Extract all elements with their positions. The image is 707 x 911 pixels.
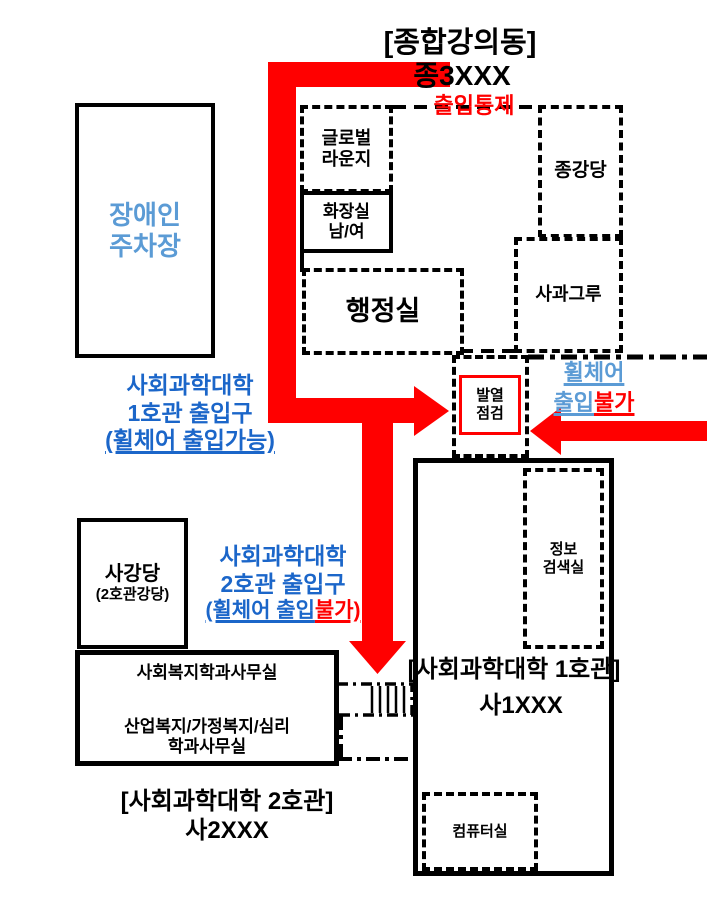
entrance1-line3: (휠체어 출입가능) (105, 427, 275, 455)
entrance2-line1: 사회과학대학 (205, 543, 360, 571)
room-sagangdang: 사강당 (2호관강당) (77, 518, 188, 649)
global-lounge-label2: 라운지 (322, 149, 372, 170)
room-auditorium: 종강당 (538, 105, 623, 238)
campus-access-map: 장애인 주차장 글로벌 라운지 화장실 남/여 종강당 사과그루 행정실 발열 … (0, 0, 707, 911)
access-control-label: 출입통제 (434, 93, 515, 119)
admin-office-label: 행정실 (346, 296, 421, 328)
arrow-to-entrance2-icon (349, 641, 406, 674)
lecture-building-title: [종합강의동] (384, 26, 537, 61)
entrance2-line3-blue: (휠체어 출입 (205, 599, 314, 622)
route-right-bar (561, 421, 707, 441)
sagangdang-label: 사강당 (105, 563, 160, 587)
fever-check-label: 발열 (476, 387, 504, 405)
room-sagwageuru: 사과그루 (514, 237, 623, 353)
room-info-search: 정보 검색실 (523, 468, 604, 649)
dept-office-label: 산업복지/가정복지/심리 (124, 717, 290, 737)
room-computer: 컴퓨터실 (422, 792, 538, 871)
building2-title: [사회과학대학 2호관] (121, 788, 334, 817)
route-left-vertical (268, 62, 296, 423)
room-global-lounge: 글로벌 라운지 (300, 105, 393, 193)
parking-label-line2: 주차장 (109, 231, 181, 262)
entrance1-label: 사회과학대학 1호관 출입구 (휠체어 출입가능) (105, 372, 275, 455)
building1-code: 사1XXX (479, 692, 562, 721)
route-horizontal (268, 398, 414, 423)
entrance2-label: 사회과학대학 2호관 출입구 (휠체어 출입불가) (205, 543, 360, 623)
wheelchair-no-entry-label: 휠체어 출입불가 (554, 358, 635, 417)
parking-label-line1: 장애인 (109, 200, 181, 231)
entrance1-line2: 1호관 출입구 (105, 400, 275, 428)
corridor-outline (337, 684, 412, 715)
info-room-label: 정보 (550, 541, 578, 559)
entrance2-line3: (휠체어 출입불가) (205, 598, 360, 623)
wheelchair-no-line2-red: 불가 (594, 390, 634, 415)
toilet-label2: 남/여 (328, 222, 364, 242)
lecture-building-code: 종3XXX (413, 59, 510, 93)
fever-check-label2: 점검 (476, 405, 504, 423)
disabled-parking-area: 장애인 주차장 (75, 103, 215, 358)
computer-room-label: 컴퓨터실 (452, 823, 507, 841)
room-toilet: 화장실 남/여 (300, 191, 393, 253)
info-room-label2: 검색실 (543, 559, 584, 577)
welfare-office-label: 사회복지학과사무실 (137, 663, 278, 683)
wheelchair-no-line1: 휠체어 (554, 358, 635, 388)
entrance2-line2: 2호관 출입구 (205, 571, 360, 599)
entrance1-line1: 사회과학대학 (105, 372, 275, 400)
building2-code: 사2XXX (185, 817, 268, 846)
global-lounge-label: 글로벌 (322, 128, 372, 149)
sagwageuru-label: 사과그루 (535, 284, 601, 305)
wheelchair-no-line2: 출입불가 (554, 388, 635, 418)
building1-title: [사회과학대학 1호관] (408, 656, 621, 685)
auditorium-label: 종강당 (554, 160, 606, 182)
room-admin-office: 행정실 (302, 268, 464, 355)
dept-office-label2: 학과사무실 (168, 737, 246, 757)
entrance2-line3-red: 불가) (315, 599, 361, 622)
fever-check-station: 발열 점검 (459, 375, 521, 435)
toilet-label: 화장실 (323, 202, 370, 222)
route-down-branch (362, 420, 393, 642)
sagangdang-sublabel: (2호관강당) (96, 586, 170, 604)
room-dept-offices: 사회복지학과사무실 산업복지/가정복지/심리 학과사무실 (75, 650, 339, 766)
wheelchair-no-line2-blue: 출입 (554, 390, 594, 415)
arrow-to-fever-check-icon (414, 386, 449, 436)
